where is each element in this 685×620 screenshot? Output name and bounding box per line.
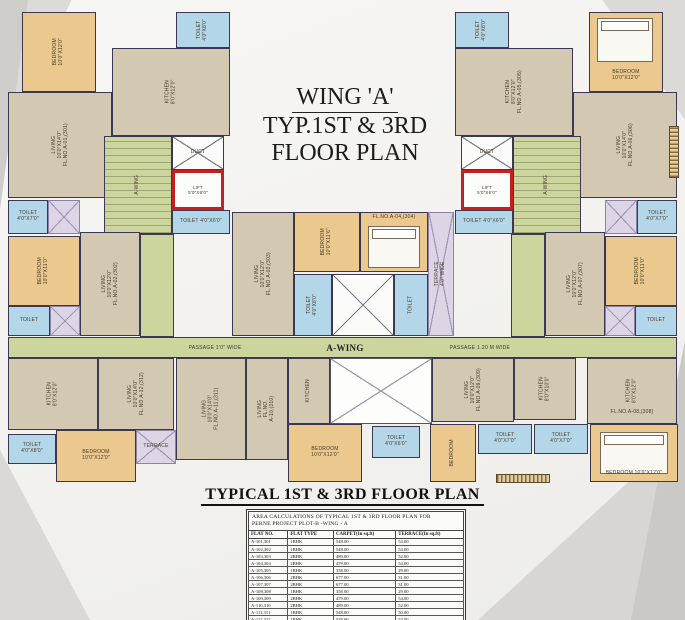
- room-liv: LIVING 10'0"X14'0" FL.NO.A-01,(301): [8, 92, 112, 198]
- room-label: KITCHEN 8'0"X12'0": [165, 80, 177, 105]
- table-cell: A-108,308: [249, 588, 288, 595]
- room-stepsh: [496, 474, 550, 483]
- room-furn: [597, 18, 653, 62]
- room-kit: KITCHEN 8'0"X12'0": [112, 48, 230, 136]
- room-liv: LIVING 10'0"X14'0" FL.NO.A-06,(306): [573, 92, 677, 198]
- room-label: LIVING 10'0"X12'0" FL.NO.A-03,(303): [254, 253, 271, 296]
- room-liv: LIVING FL.NO. A-10,(310): [246, 358, 288, 460]
- room-duct: [332, 274, 394, 336]
- table-column-header: FLAT NO.: [249, 530, 288, 538]
- room-label: FL.NO.A-04,(304): [373, 215, 416, 221]
- room-bed: BEDROOM 10'0"X12'0": [22, 12, 96, 92]
- room-bed: BEDROOM: [430, 424, 476, 482]
- room-steps: [669, 126, 679, 178]
- room-ter: [605, 306, 635, 336]
- table-cell: 1BHK: [288, 588, 334, 595]
- table-cell: 2BHK: [288, 560, 334, 567]
- table-cell: 50.00: [396, 609, 464, 616]
- table-cell: 31.00: [396, 581, 464, 588]
- table-cell: 1BHK: [288, 609, 334, 616]
- table-row: A-105,3051BHK358.0029.00: [249, 567, 464, 574]
- room-label: TOILET 4'0"X7'0": [550, 433, 572, 445]
- room-label: LIFT 5'0"X6'0": [188, 185, 208, 195]
- table-cell: A-107,307: [249, 581, 288, 588]
- room-lbl: BEDROOM 10'0"X12'0": [594, 468, 674, 480]
- room-toi: TOILET: [8, 306, 50, 336]
- area-table: AREA CALCULATIONS OF TYPICAL 1ST & 3RD F…: [246, 509, 466, 620]
- room-label: LIFT 5'0"X6'0": [477, 185, 497, 195]
- room-label: FL.NO.A-08,(308): [611, 410, 654, 416]
- room-label: TOILET 4'0"X6'0": [180, 219, 222, 225]
- room-passv: [511, 234, 545, 337]
- table-column-header: TERRACE(In sq.ft): [396, 530, 464, 538]
- table-cell: A-110,310: [249, 602, 288, 609]
- table-header-row: FLAT NO.FLAT TYPECARPET(In sq.ft)TERRACE…: [249, 530, 464, 538]
- table-row: A-110,3102BHK489.0052.00: [249, 602, 464, 609]
- room-label: TOILET: [647, 318, 666, 324]
- room-furn: [368, 226, 420, 268]
- room-stair: A-WING: [104, 136, 172, 234]
- table-row: A-107,3072BHK677.0031.00: [249, 581, 464, 588]
- room-label: BEDROOM 10'0"X11'6": [321, 228, 333, 255]
- table-cell: 2BHK: [288, 581, 334, 588]
- room-toi: TOILET 4'0"X7'0": [8, 200, 48, 234]
- room-toi: TOILET 4'0"X8'0": [294, 274, 332, 336]
- table-row: A-101,3011BHK548.0054.00: [249, 538, 464, 545]
- floor-plan: BEDROOM 10'0"X12'0"TOILET 4'0"X8'0"KITCH…: [0, 0, 685, 490]
- room-toi: TOILET 4'0"X7'0": [478, 424, 532, 454]
- room-toi: TOILET: [635, 306, 677, 336]
- table-row: A-111,3111BHK548.0050.00: [249, 609, 464, 616]
- room-liv: LIVING 10'0"X14'0" FL.NO.A-12,(312): [98, 358, 174, 430]
- room-label: LIVING 10'0"X14'0" FL.NO.A-06,(306): [616, 124, 633, 167]
- room-label: TOILET 4'0"X8'0": [21, 443, 43, 455]
- room-duct: DUCT: [172, 136, 224, 170]
- room-liv: LIVING 10'0"X12'0" FL.NO.A-03,(303): [232, 212, 294, 336]
- room-label: KITCHEN 8'0"X12'0": [626, 379, 638, 404]
- table-cell: 2BHK: [288, 574, 334, 581]
- table-row: A-108,3081BHK358.0029.00: [249, 588, 464, 595]
- table-cell: 358.00: [333, 588, 395, 595]
- room-label: BEDROOM 10'0"X12'0": [53, 38, 65, 66]
- table-cell: 52.00: [396, 602, 464, 609]
- table-cell: 489.00: [333, 553, 395, 560]
- room-label: TOILET 4'0"X8'0": [476, 19, 488, 41]
- table-caption-line1: AREA CALCULATIONS OF TYPICAL 1ST & 3RD F…: [252, 514, 431, 520]
- table-row: A-109,3092BHK479.0054.00: [249, 595, 464, 602]
- room-label: KITCHEN 8'0"X10'0": [539, 377, 551, 402]
- table-row: A-104,3042BHK479.0054.00: [249, 560, 464, 567]
- room-label: TOILET 4'0"X7'0": [646, 211, 668, 223]
- room-label: TOILET: [20, 318, 39, 324]
- table-cell: 1BHK: [288, 538, 334, 545]
- room-kit: KITCHEN 8'0"X12'0": [8, 358, 98, 430]
- table-cell: A-112,312: [249, 616, 288, 620]
- table-cell: 31.00: [396, 574, 464, 581]
- room-label: TOILET 4'0"X7'0": [17, 211, 39, 223]
- room-label: TOILET: [408, 296, 414, 315]
- room-lift: LIFT 5'0"X6'0": [172, 170, 224, 210]
- room-ter: [48, 200, 80, 234]
- table-cell: 1BHK: [288, 546, 334, 553]
- room-duct: DUCT: [461, 136, 513, 170]
- plan-title-line3: FLOOR PLAN: [230, 140, 460, 167]
- table-cell: 1BHK: [288, 567, 334, 574]
- passage-left-label: PASSAGE 1'0" WIDE: [130, 340, 300, 356]
- footer-heading-text: TYPICAL 1ST & 3RD FLOOR PLAN: [201, 486, 484, 506]
- room-toi: TOILET 4'0"X7'0": [637, 200, 677, 234]
- table-caption: AREA CALCULATIONS OF TYPICAL 1ST & 3RD F…: [249, 512, 464, 531]
- table-row: A-103,3032BHK489.0052.00: [249, 553, 464, 560]
- room-label: TOILET 4'0"X7'0": [494, 433, 516, 445]
- table-cell: 2BHK: [288, 602, 334, 609]
- table-cell: 548.00: [333, 609, 395, 616]
- table-caption-line2: PERNE PROJECT PLOT-B -WING - A: [252, 521, 348, 527]
- table-cell: 54.00: [396, 560, 464, 567]
- room-label: LIVING 10'0"X14'0" FL.NO.A-11,(311): [202, 388, 219, 430]
- room-label: LIVING FL.NO. A-10,(310): [258, 396, 275, 422]
- room-toi: TOILET 4'0"X8'0": [176, 12, 230, 48]
- table-cell: A-105,305: [249, 567, 288, 574]
- room-ter: TERRACE: [136, 430, 176, 464]
- table-row: A-102,3021BHK548.0054.00: [249, 546, 464, 553]
- table-cell: 54.00: [396, 546, 464, 553]
- room-toi: TOILET 4'0"X7'0": [534, 424, 588, 454]
- table-cell: A-103,303: [249, 553, 288, 560]
- room-kit: KITCHEN 8'0"X10'0": [514, 358, 576, 420]
- room-label: BEDROOM 10'0"X12'0": [606, 471, 663, 477]
- table-cell: 548.00: [333, 616, 395, 620]
- table-cell: 479.00: [333, 595, 395, 602]
- room-liv: LIVING 10'0"X12'0" FL.NO.A-02,(302): [80, 232, 140, 336]
- wing-label: A-WING: [300, 340, 390, 356]
- room-label: BEDROOM 10'0"X12'0": [311, 447, 339, 459]
- table-cell: 489.00: [333, 602, 395, 609]
- room-toi: TOILET 4'0"X6'0": [172, 210, 230, 234]
- room-liv: LIVING 10'0"X12'0" FL.NO.A-07,(307): [545, 232, 605, 336]
- table-column-header: CARPET(In sq.ft): [333, 530, 395, 538]
- passage-right-label: PASSAGE 1.20 M WIDE: [395, 340, 565, 356]
- room-lbl: FL.NO.A-04,(304): [362, 212, 426, 224]
- room-bed: BEDROOM 10'0"X11'6": [294, 212, 360, 272]
- table-cell: 1BHK: [288, 616, 334, 620]
- table-cell: 677.00: [333, 581, 395, 588]
- room-toi: TOILET: [394, 274, 428, 336]
- table-body: A-101,3011BHK548.0054.00A-102,3021BHK548…: [249, 538, 464, 620]
- table-row: A-112,3121BHK548.0054.00: [249, 616, 464, 620]
- table-cell: 29.00: [396, 588, 464, 595]
- room-toi: TOILET 4'0"X6'0": [372, 426, 420, 458]
- room-label: KITCHEN: [306, 379, 312, 402]
- room-toi: TOILET 4'0"X6'0": [455, 210, 513, 234]
- table-cell: 479.00: [333, 560, 395, 567]
- room-label: BEDROOM: [450, 439, 456, 466]
- plan-title-line1: WING 'A': [292, 84, 397, 113]
- room-label: TOILET 4'0"X8'0": [307, 294, 319, 316]
- room-ter: [605, 200, 637, 234]
- room-lbl: FL.NO.A-08,(308): [592, 406, 672, 420]
- room-label: LIVING 10'0"X12'0" FL.NO.A-09,(309): [464, 369, 481, 412]
- table-cell: A-106,306: [249, 574, 288, 581]
- room-label: BEDROOM 10'0"X12'0": [612, 70, 640, 82]
- room-label: KITCHEN 8'0"X12'0" FL.NO.A-05,(305): [505, 71, 522, 114]
- room-label: LIVING 10'0"X14'0" FL.NO.A-12,(312): [127, 373, 144, 416]
- room-toi: TOILET 4'0"X8'0": [8, 434, 56, 464]
- table-cell: A-111,311: [249, 609, 288, 616]
- room-liv: LIVING 10'0"X12'0" FL.NO.A-09,(309): [432, 358, 514, 422]
- room-label: LIVING 10'0"X14'0" FL.NO.A-01,(301): [51, 124, 68, 167]
- room-label: LIVING 10'0"X12'0" FL.NO.A-02,(302): [101, 263, 118, 306]
- table-column-header: FLAT TYPE: [288, 530, 334, 538]
- table-cell: 29.00: [396, 567, 464, 574]
- room-label: DUCT: [480, 150, 495, 156]
- table-cell: 358.00: [333, 567, 395, 574]
- room-label: A-WING: [135, 175, 141, 195]
- footer-heading: TYPICAL 1ST & 3RD FLOOR PLAN: [0, 486, 685, 504]
- room-label: TERRACE: [143, 444, 168, 450]
- table-cell: 548.00: [333, 538, 395, 545]
- room-open: [330, 358, 432, 424]
- room-lift: LIFT 5'0"X6'0": [461, 170, 513, 210]
- room-passv: [140, 234, 174, 337]
- room-bed: BEDROOM 10'0"X12'0": [288, 424, 362, 482]
- room-label: LIVING 10'0"X12'0" FL.NO.A-07,(307): [566, 263, 583, 306]
- table-cell: A-102,302: [249, 546, 288, 553]
- room-label: TERRACE 4'0" WIDE: [435, 261, 447, 286]
- table-row: A-106,3062BHK677.0031.00: [249, 574, 464, 581]
- table-cell: A-109,309: [249, 595, 288, 602]
- table-cell: 54.00: [396, 595, 464, 602]
- room-label: BEDROOM 10'0"X11'0": [635, 257, 647, 284]
- room-label: TOILET 4'0"X6'0": [463, 219, 505, 225]
- table-cell: 2BHK: [288, 595, 334, 602]
- table-cell: 677.00: [333, 574, 395, 581]
- room-label: A-WING: [544, 175, 550, 195]
- room-kit: KITCHEN 8'0"X12'0" FL.NO.A-05,(305): [455, 48, 573, 136]
- table-cell: 54.00: [396, 616, 464, 620]
- room-bed: BEDROOM 10'0"X11'0": [8, 236, 80, 306]
- table-cell: 54.00: [396, 538, 464, 545]
- floor-plan-sheet: BEDROOM 10'0"X12'0"TOILET 4'0"X8'0"KITCH…: [0, 0, 685, 620]
- room-label: BEDROOM 10'0"X12'0": [82, 450, 110, 462]
- table-cell: 2BHK: [288, 553, 334, 560]
- room-label: TOILET 4'0"X8'0": [197, 19, 209, 41]
- table-cell: A-104,304: [249, 560, 288, 567]
- room-label: TOILET 4'0"X6'0": [385, 436, 407, 448]
- table-cell: 548.00: [333, 546, 395, 553]
- room-liv: LIVING 10'0"X14'0" FL.NO.A-11,(311): [176, 358, 246, 460]
- room-stair: A-WING: [513, 136, 581, 234]
- room-bed: BEDROOM 10'0"X11'0": [605, 236, 677, 306]
- room-toi: TOILET 4'0"X8'0": [455, 12, 509, 48]
- room-bed: BEDROOM 10'0"X12'0": [56, 430, 136, 482]
- plan-title: WING 'A' TYP.1ST & 3RD FLOOR PLAN: [230, 84, 460, 167]
- room-label: BEDROOM 10'0"X11'0": [38, 257, 50, 284]
- table-cell: A-101,301: [249, 538, 288, 545]
- room-ter: [50, 306, 80, 336]
- plan-title-line2: TYP.1ST & 3RD: [230, 113, 460, 140]
- room-ter: TERRACE 4'0" WIDE: [428, 212, 454, 336]
- room-lbl: BEDROOM 10'0"X12'0": [591, 66, 661, 86]
- room-label: DUCT: [191, 150, 206, 156]
- table-cell: 52.00: [396, 553, 464, 560]
- room-kit: KITCHEN: [288, 358, 330, 424]
- room-label: KITCHEN 8'0"X12'0": [47, 382, 59, 407]
